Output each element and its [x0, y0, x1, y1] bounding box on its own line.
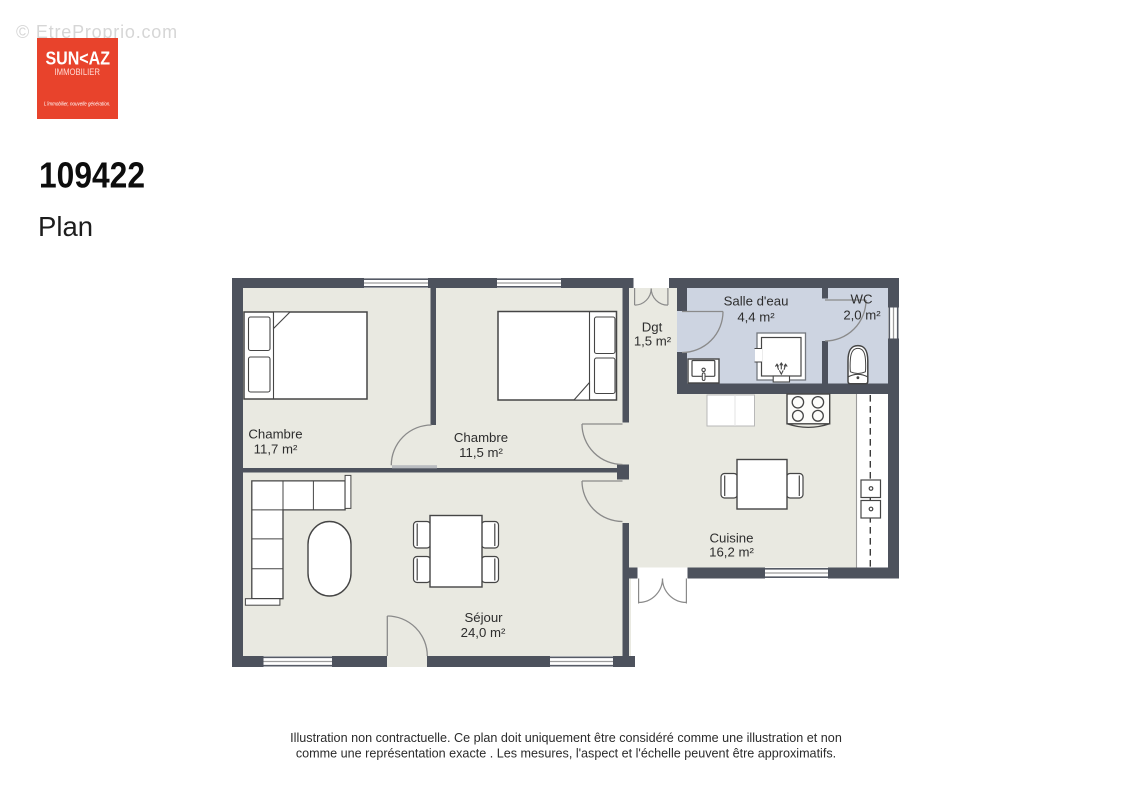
svg-text:109422: 109422: [39, 155, 145, 196]
svg-text:Chambre: Chambre: [248, 426, 302, 441]
svg-text:16,2 m²: 16,2 m²: [709, 544, 754, 559]
svg-text:Illustration non contractuelle: Illustration non contractuelle. Ce plan …: [290, 731, 842, 745]
svg-text:Dgt: Dgt: [642, 319, 663, 334]
svg-text:comme une représentation exact: comme une représentation exacte . Les me…: [296, 746, 836, 760]
svg-text:Chambre: Chambre: [454, 430, 508, 445]
svg-text:SUN<AZ: SUN<AZ: [46, 48, 111, 68]
svg-text:4,4 m²: 4,4 m²: [737, 309, 775, 324]
svg-text:2,0 m²: 2,0 m²: [843, 307, 881, 322]
svg-text:11,5 m²: 11,5 m²: [459, 445, 503, 460]
svg-text:1,5 m²: 1,5 m²: [634, 333, 672, 348]
svg-text:IMMOBILIER: IMMOBILIER: [55, 67, 101, 77]
svg-text:WC: WC: [851, 291, 873, 306]
svg-text:Salle d'eau: Salle d'eau: [724, 293, 789, 308]
svg-text:Plan: Plan: [38, 211, 93, 242]
svg-text:11,7 m²: 11,7 m²: [254, 441, 298, 456]
svg-text:Cuisine: Cuisine: [710, 530, 754, 545]
svg-text:L'immobilier, nouvelle générat: L'immobilier, nouvelle génération.: [44, 101, 111, 107]
svg-text:24,0 m²: 24,0 m²: [461, 625, 506, 640]
svg-text:Séjour: Séjour: [464, 610, 503, 625]
